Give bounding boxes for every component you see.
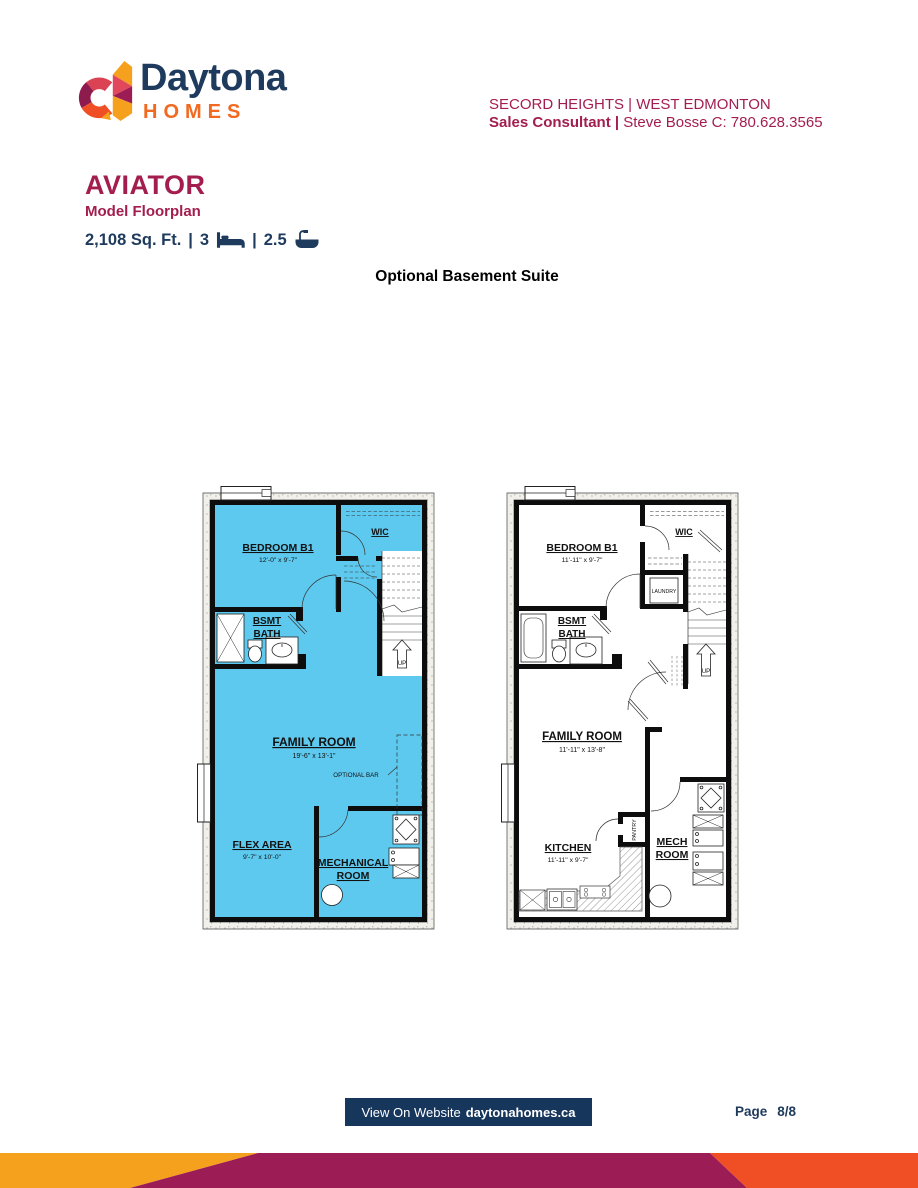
model-name: AVIATOR	[85, 170, 206, 201]
section-title: Optional Basement Suite	[0, 268, 918, 286]
sales-consultant-label: Sales Consultant |	[489, 114, 619, 131]
room-label-pantry: PANTRY	[632, 819, 638, 841]
daytona-logo-icon	[76, 60, 136, 124]
page-number: Page 8/8	[735, 1104, 796, 1119]
room-dim-kitchen: 11'-11" x 9'-7"	[548, 857, 589, 864]
floorplan-page: Daytona HOMES SECORD HEIGHTS | WEST EDMO…	[0, 0, 918, 1188]
room-label-kitchen: KITCHEN	[545, 842, 592, 854]
room-label-flex: FLEX AREA	[232, 839, 292, 851]
spec-row: 2,108 Sq. Ft. | 3 | 2.5	[85, 230, 320, 250]
bath-count: 2.5	[264, 231, 287, 250]
view-on-website-button[interactable]: View On Website daytonahomes.ca	[345, 1098, 592, 1126]
room-label-wic: WIC	[675, 527, 693, 537]
sales-consultant-line: Sales Consultant | Steve Bosse C: 780.62…	[489, 114, 823, 131]
room-label-bath-2: BATH	[253, 629, 280, 640]
website-label: View On Website	[361, 1105, 460, 1120]
sqft-value: 2,108 Sq. Ft.	[85, 231, 181, 250]
room-label-mech-2: ROOM	[337, 870, 370, 882]
page-value: 8/8	[777, 1104, 796, 1119]
bath-icon	[294, 230, 320, 250]
stairs-up-label: UP	[398, 660, 407, 667]
bed-count: 3	[200, 231, 209, 250]
page-label: Page	[735, 1104, 767, 1119]
floorplan-standard: UP	[500, 484, 745, 936]
footer-color-stripe	[0, 1153, 918, 1188]
spec-separator-2: |	[252, 231, 257, 250]
community-title: SECORD HEIGHTS | WEST EDMONTON	[489, 96, 771, 113]
room-label-family: FAMILY ROOM	[272, 735, 355, 749]
model-subtitle: Model Floorplan	[85, 203, 201, 220]
room-dim-bedroom: 11'-11" x 9'-7"	[562, 557, 603, 564]
website-domain: daytonahomes.ca	[466, 1105, 576, 1120]
stairs-up-label: UP	[702, 668, 711, 675]
room-label-wic: WIC	[371, 527, 389, 537]
floorplan-suite-highlighted: UP	[196, 484, 441, 936]
room-label-laundry: LAUNDRY	[652, 589, 677, 595]
room-dim-family: 19'-6" x 13'-1"	[292, 753, 336, 760]
sales-consultant-info: Steve Bosse C: 780.628.3565	[619, 114, 822, 131]
bed-icon	[216, 231, 245, 249]
room-dim-family: 11'-11" x 13'-8"	[559, 747, 605, 754]
room-label-family: FAMILY ROOM	[542, 731, 622, 743]
room-label-bath-1: BSMT	[253, 616, 281, 627]
spec-separator: |	[188, 231, 193, 250]
room-label-mech-2: ROOM	[656, 849, 689, 861]
room-label-mech-1: MECH	[657, 836, 688, 848]
brand-subtitle: HOMES	[143, 101, 246, 124]
brand-name: Daytona	[140, 57, 286, 100]
room-label-bedroom: BEDROOM B1	[546, 542, 617, 554]
room-label-mech-1: MECHANICAL	[318, 857, 389, 869]
room-dim-bedroom: 12'-0" x 9'-7"	[259, 557, 298, 564]
room-label-bath-2: BATH	[558, 629, 585, 640]
room-dim-flex: 9'-7" x 10'-0"	[243, 854, 282, 861]
room-label-bedroom: BEDROOM B1	[242, 542, 313, 554]
label-optional-bar: OPTIONAL BAR	[333, 772, 379, 779]
room-label-bath-1: BSMT	[558, 616, 586, 627]
